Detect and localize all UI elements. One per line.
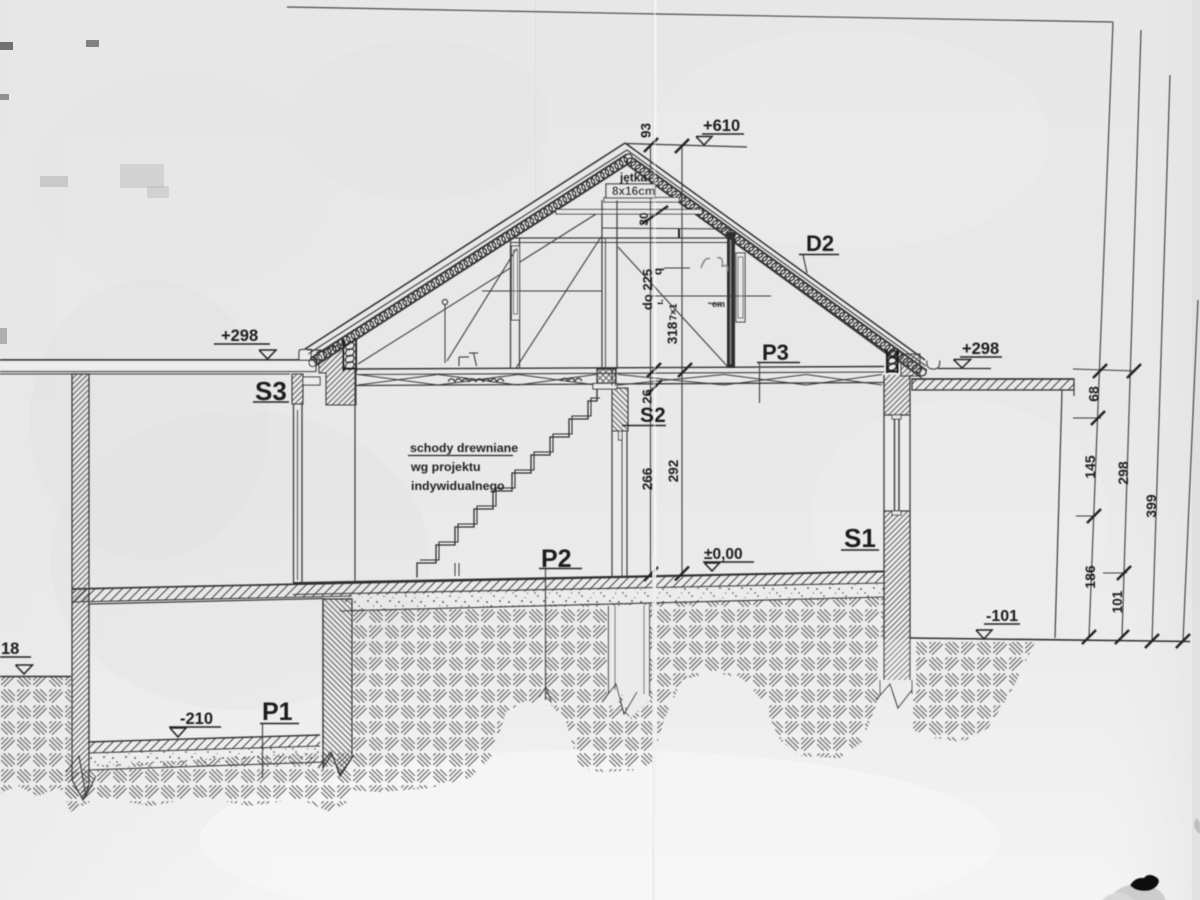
svg-text:30: 30: [637, 212, 651, 226]
svg-text:266: 266: [640, 467, 655, 490]
svg-text:26: 26: [640, 389, 655, 403]
svg-text:8x16cm: 8x16cm: [612, 184, 655, 198]
svg-text:ı.: ı.: [655, 299, 666, 305]
svg-text:186: 186: [1082, 565, 1098, 589]
svg-text:-101: -101: [986, 608, 1018, 625]
svg-text:101: 101: [1110, 590, 1125, 613]
svg-text:indywidualnego: indywidualnego: [411, 479, 505, 493]
svg-text:P3: P3: [762, 340, 789, 365]
svg-text:18: 18: [1, 640, 19, 658]
svg-text:68: 68: [1086, 386, 1102, 402]
svg-text:±0,00: ±0,00: [704, 546, 743, 563]
svg-text:93: 93: [639, 123, 654, 139]
svg-text:q: q: [651, 268, 665, 275]
svg-text:145: 145: [1082, 455, 1098, 479]
svg-text:318: 318: [665, 321, 680, 344]
svg-text:+610: +610: [703, 117, 740, 135]
svg-text:+298: +298: [962, 340, 999, 358]
svg-text:P1: P1: [262, 698, 293, 726]
svg-text:S2: S2: [640, 404, 666, 427]
svg-text:292: 292: [666, 460, 681, 483]
svg-text:jętka: jętka: [619, 171, 647, 185]
svg-text:-210: -210: [180, 710, 213, 728]
svg-text:D2: D2: [806, 231, 834, 256]
svg-text:399: 399: [1143, 494, 1159, 518]
svg-text:7×1: 7×1: [669, 303, 680, 320]
svg-text:+298: +298: [221, 327, 258, 345]
svg-text:cm: cm: [712, 299, 725, 309]
svg-text:wg projektu: wg projektu: [410, 460, 481, 474]
svg-text:schody drewniane: schody drewniane: [410, 441, 518, 455]
svg-text:S1: S1: [844, 523, 876, 553]
svg-text:298: 298: [1115, 461, 1131, 485]
